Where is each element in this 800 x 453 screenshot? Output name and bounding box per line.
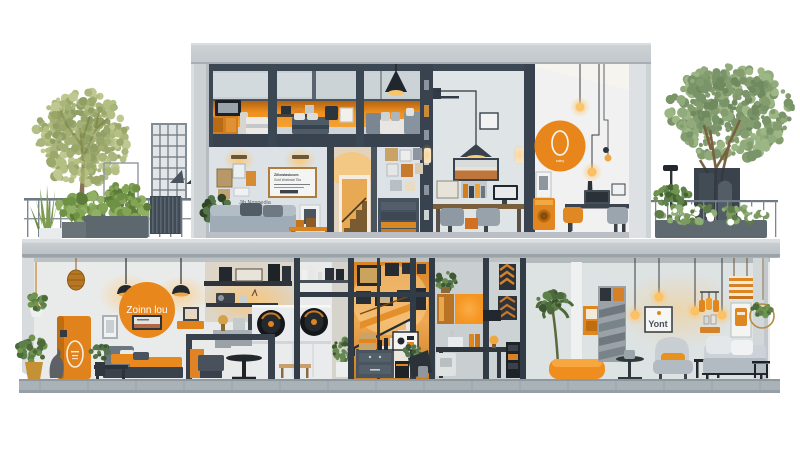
svg-text:zainy: zainy [556,159,564,163]
svg-text:Yont: Yont [648,319,667,329]
svg-text:Zillowlaskcom: Zillowlaskcom [274,173,299,177]
svg-text:Gold Worthslal Tita: Gold Worthslal Tita [274,178,301,182]
svg-text:Zoinn lou: Zoinn lou [126,305,167,316]
